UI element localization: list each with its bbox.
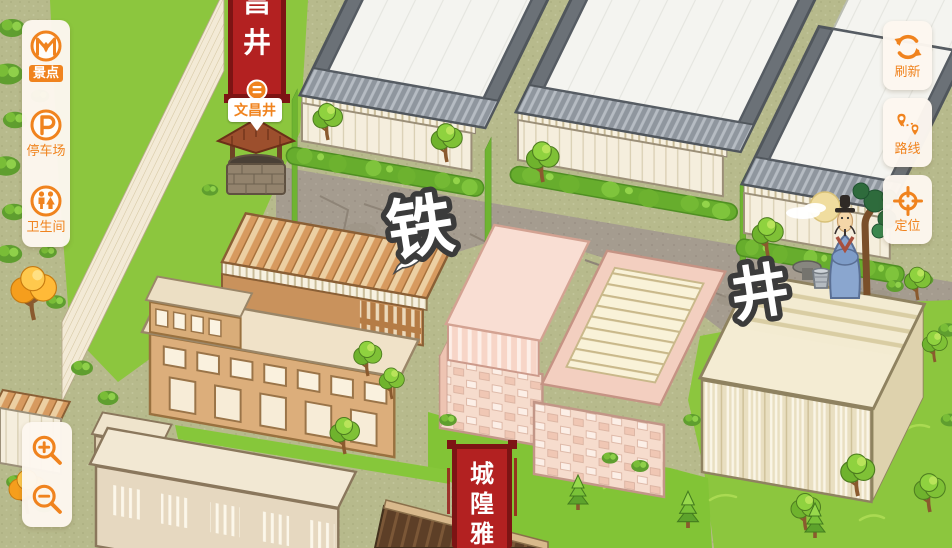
refresh-button[interactable]: 刷新 [883,21,932,90]
menu-item-label: 卫生间 [26,220,65,235]
refresh-label: 刷新 [894,65,920,80]
map-marker-label[interactable]: 文昌井 [228,98,282,122]
locate-button[interactable]: 定位 [883,175,932,244]
menu-item-restroom[interactable]: 卫生间 [26,184,65,235]
zoom-out-icon [29,481,65,517]
zoom-out-button[interactable] [29,481,65,517]
menu-item-scenic-spots[interactable]: 景点 [29,29,63,82]
street-label-tie: 铁 [382,186,459,269]
scenic-spot-icon [29,29,63,63]
menu-item-parking[interactable]: 停车场 [26,108,65,159]
zoom-controls-panel [22,422,72,527]
restroom-icon [29,184,63,218]
route-button[interactable]: 路线 [883,98,932,167]
map-marker-label-text: 文昌井 [234,102,276,118]
menu-item-label: 景点 [29,65,63,82]
menu-item-label: 停车场 [26,144,65,159]
left-menu-panel: 景点 停车场 卫生间 [22,20,70,247]
refresh-icon [893,32,923,62]
locate-label: 定位 [894,219,920,234]
zoom-in-icon [29,432,65,468]
banner-top-char-1: 昌 [244,0,271,18]
banner-bottom-char-1: 城 [470,460,494,488]
banner-bottom[interactable]: 城 隍 雅 [447,440,517,548]
route-label: 路线 [894,142,920,157]
banner-top-char-2: 井 [243,27,271,59]
zoom-in-button[interactable] [29,432,65,468]
locate-icon [893,186,923,216]
map-marker-arrow [249,120,265,131]
scenic-map-app: 昌 井 城 隍 雅 铁 井 文昌井 景点 停车场 [0,0,952,548]
parking-icon [29,108,63,142]
street-label-jing: 井 [726,256,793,329]
map-canvas[interactable]: 昌 井 城 隍 雅 铁 井 [0,0,952,548]
route-icon [893,109,923,139]
banner-bottom-char-3: 雅 [470,521,494,548]
banner-bottom-char-2: 隍 [470,491,494,518]
